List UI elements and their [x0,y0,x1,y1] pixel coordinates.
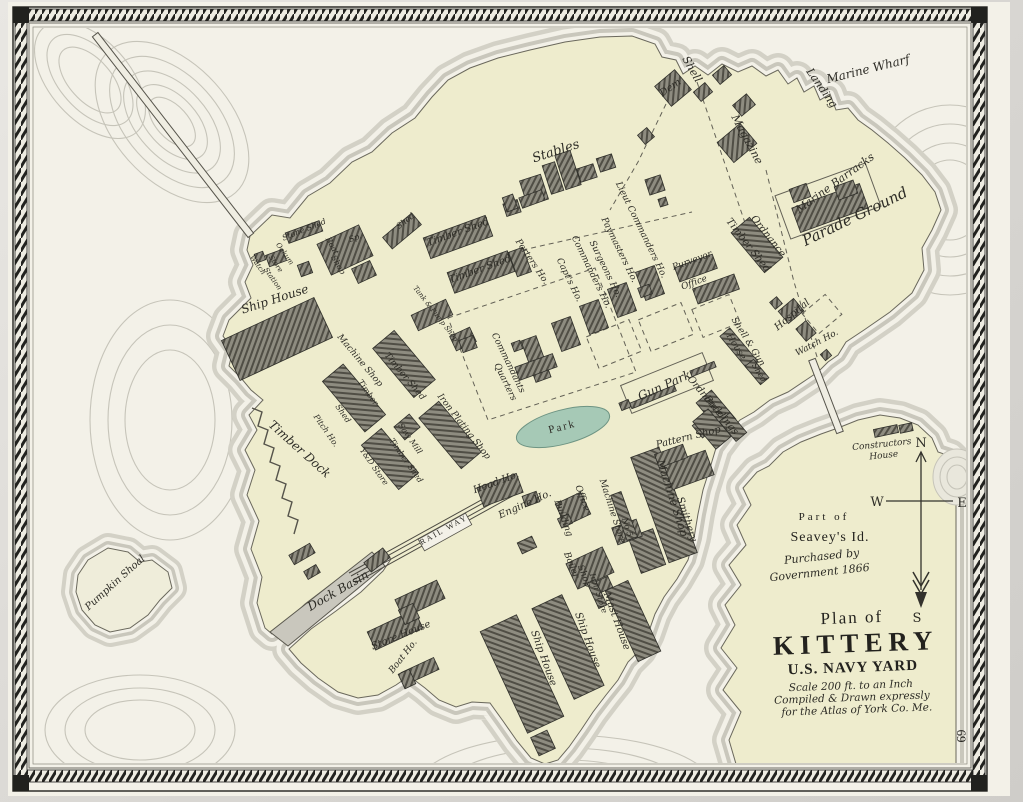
note-part-of: Part of [799,511,850,523]
photographed-atlas-page: ShellDemLandingMarine WharfMagazineStabl… [0,0,1023,802]
note-seaveys-id: Seavey's Id. [790,530,869,545]
compass-north: N [915,436,926,451]
title-kittery: KITTERY [772,625,939,661]
kittery-navy-yard-map: ShellDemLandingMarine WharfMagazineStabl… [0,0,1023,802]
compass-east: E [957,496,967,511]
compass-south: S [913,611,922,626]
title-plan-of: Plan of [820,607,883,628]
compass-west: W [870,495,884,510]
